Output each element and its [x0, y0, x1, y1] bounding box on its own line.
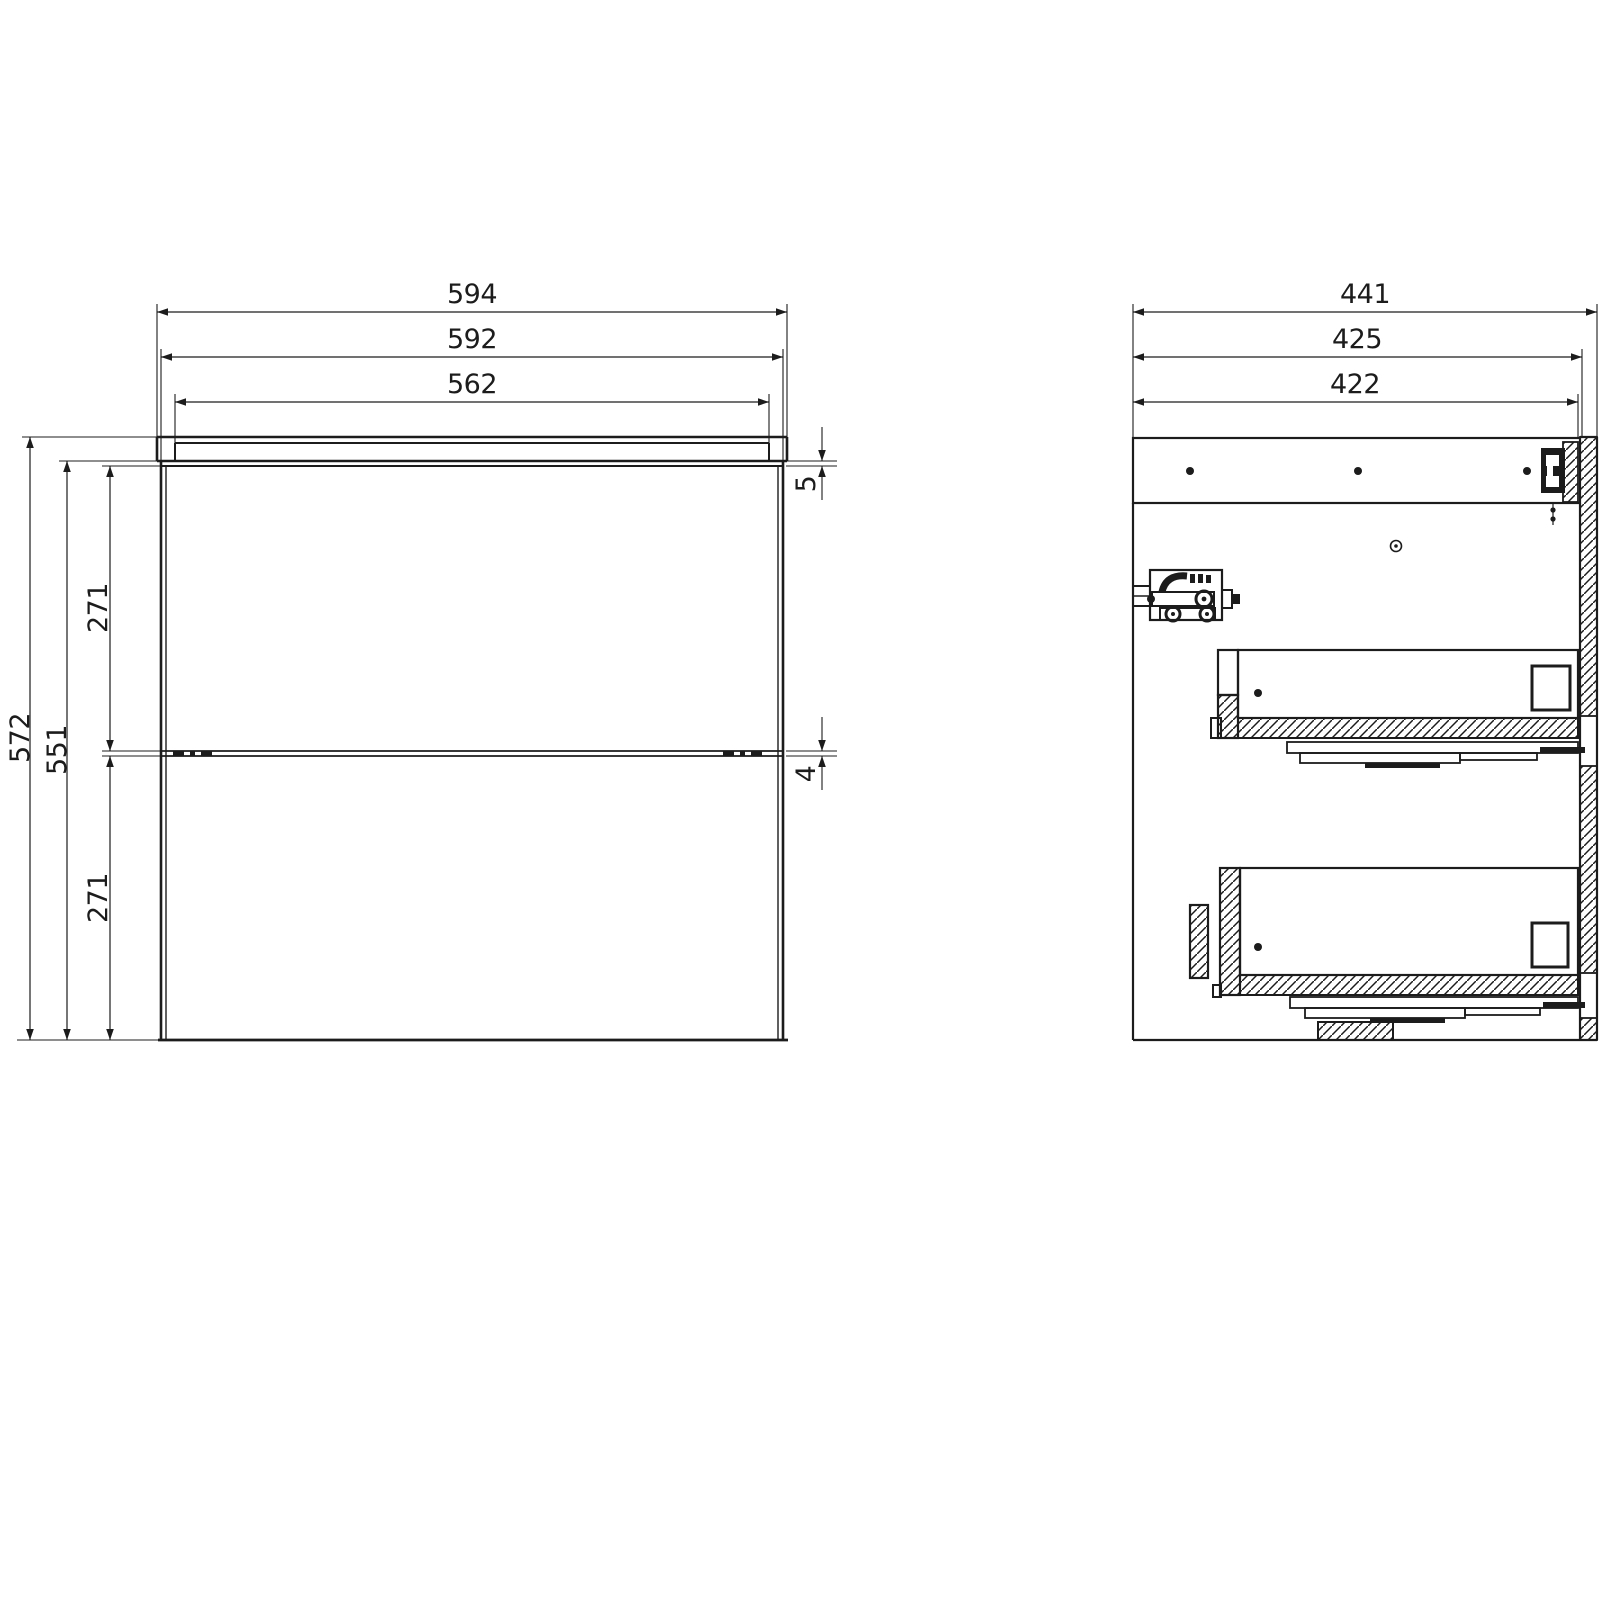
front-drawer-divider [161, 751, 783, 756]
front-drawer-side-edges [166, 466, 778, 1040]
screw-hole-dot [1523, 467, 1531, 475]
lower-drawer-slide [1290, 997, 1585, 1023]
adjuster-knob [1222, 590, 1232, 608]
hanging-bracket [1541, 442, 1578, 525]
slide-rail-mount [1543, 1002, 1585, 1008]
dim-label-top-gap: 5 [791, 476, 822, 493]
adjuster-wheel-right-center [1205, 612, 1209, 616]
dim-label-side-carcass-depth: 422 [1330, 369, 1380, 400]
upper-drawer [1211, 650, 1585, 768]
upper-drawer-front-top [1218, 650, 1238, 695]
slide-rail-inner [1300, 753, 1460, 763]
lower-drawer-dowel-dot [1254, 943, 1262, 951]
upper-drawer-box [1238, 650, 1578, 718]
bracket-slot-channel [1547, 465, 1553, 477]
adjuster-tooth [1190, 574, 1195, 583]
adjustment-dot-upper [1550, 507, 1555, 512]
drawing-sheet: 594 592 562 572 551 271 271 [0, 0, 1600, 1600]
mount-adjuster-mechanism [1133, 570, 1240, 621]
front-cabinet-body [157, 437, 788, 1040]
back-panel-hole [1391, 541, 1402, 552]
dim-label-side-overall-depth: 441 [1340, 279, 1390, 310]
adjuster-cam-center [1202, 597, 1207, 602]
lower-drawer [1190, 868, 1585, 1040]
upper-drawer-bottom-section [1238, 718, 1578, 738]
front-dimensions-left: 572 551 271 271 [5, 437, 161, 1040]
dim-label-front-overall-height: 572 [5, 713, 36, 763]
dim-label-drawer-gap: 4 [791, 766, 822, 783]
bracket-slot-upper [1546, 455, 1559, 466]
front-view: 594 592 562 572 551 271 271 [5, 279, 837, 1040]
dim-label-side-body-depth: 425 [1332, 324, 1382, 355]
front-drawer-top-edge [175, 443, 769, 461]
dim-label-front-drawer-width: 562 [447, 369, 497, 400]
upper-drawer-dowel-dot [1254, 689, 1262, 697]
wall-strip-upper-segment [1580, 437, 1597, 716]
lower-drawer-front-panel-section [1190, 905, 1208, 978]
wall-strip-middle-segment [1580, 766, 1597, 973]
dim-label-front-carcass-width: 592 [447, 324, 497, 355]
screw-hole-dot [1354, 467, 1362, 475]
wall-mounting-strip [1580, 437, 1597, 1040]
front-left-extension-lines [17, 437, 161, 1040]
adjuster-wheel-left-center [1171, 612, 1175, 616]
lower-drawer-bottom-section [1240, 975, 1578, 995]
dim-label-front-carcass-height: 551 [42, 725, 73, 775]
upper-drawer-back-detail [1532, 666, 1570, 710]
screw-hole-dot [1186, 467, 1194, 475]
adjuster-pin [1147, 595, 1155, 603]
side-dimensions-top: 441 425 422 [1133, 279, 1597, 438]
slide-rail-mount [1540, 747, 1585, 753]
bottom-cross-rail-section [1318, 1022, 1393, 1040]
slide-rail-outer [1290, 997, 1578, 1008]
lower-drawer-front-section [1220, 868, 1240, 995]
adjustment-dot-lower [1550, 516, 1555, 521]
dim-label-lower-drawer-height: 271 [83, 873, 114, 923]
front-countertop [157, 437, 787, 461]
lower-drawer-box [1240, 868, 1578, 975]
front-dimensions-right: 5 4 [786, 427, 837, 790]
dim-label-front-overall-width: 594 [447, 279, 497, 310]
slide-rail-runner [1465, 1008, 1540, 1015]
adjuster-tooth [1198, 574, 1203, 583]
bracket-slot-lower [1546, 476, 1559, 487]
slide-rail-inner [1305, 1008, 1465, 1018]
side-view: 441 425 422 [1133, 279, 1597, 1040]
slide-rail-runner [1460, 753, 1537, 760]
lower-drawer-back-detail [1532, 923, 1568, 967]
dim-label-upper-drawer-height: 271 [83, 583, 114, 633]
upper-drawer-slide [1287, 742, 1585, 768]
bracket-wall-plate [1563, 442, 1578, 502]
slide-rail-stop [1365, 763, 1440, 768]
slide-rail-outer [1287, 742, 1578, 753]
technical-drawing: 594 592 562 572 551 271 271 [0, 0, 1600, 1600]
adjuster-knob-tip [1232, 594, 1240, 604]
adjuster-tooth [1206, 575, 1211, 583]
wall-strip-lower-segment [1580, 1018, 1597, 1040]
hole-center-dot [1394, 544, 1398, 548]
adjuster-lever [1162, 576, 1187, 592]
front-dimensions-top: 594 592 562 [157, 279, 787, 461]
